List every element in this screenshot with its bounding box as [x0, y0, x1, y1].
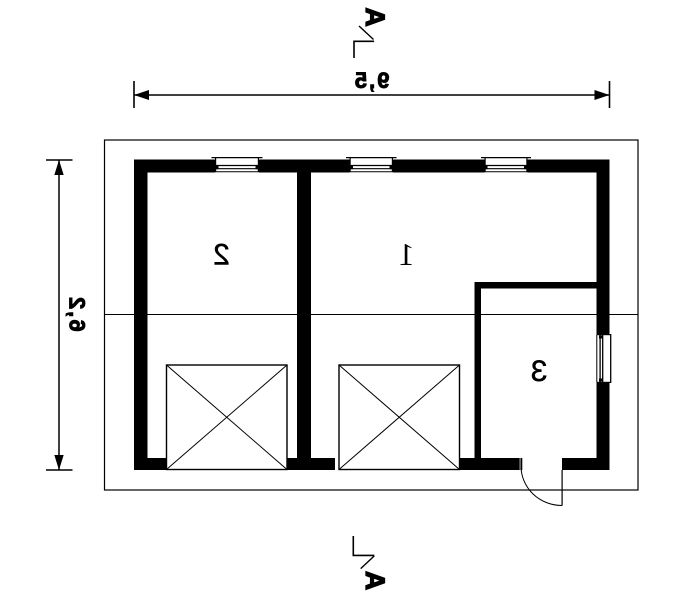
svg-text:6,2: 6,2 — [65, 295, 90, 332]
svg-text:1: 1 — [399, 237, 415, 272]
svg-text:A: A — [360, 571, 390, 590]
svg-text:2: 2 — [213, 239, 230, 272]
svg-text:9,5: 9,5 — [353, 68, 390, 93]
svg-text:3: 3 — [531, 355, 548, 388]
svg-text:A: A — [360, 7, 390, 26]
